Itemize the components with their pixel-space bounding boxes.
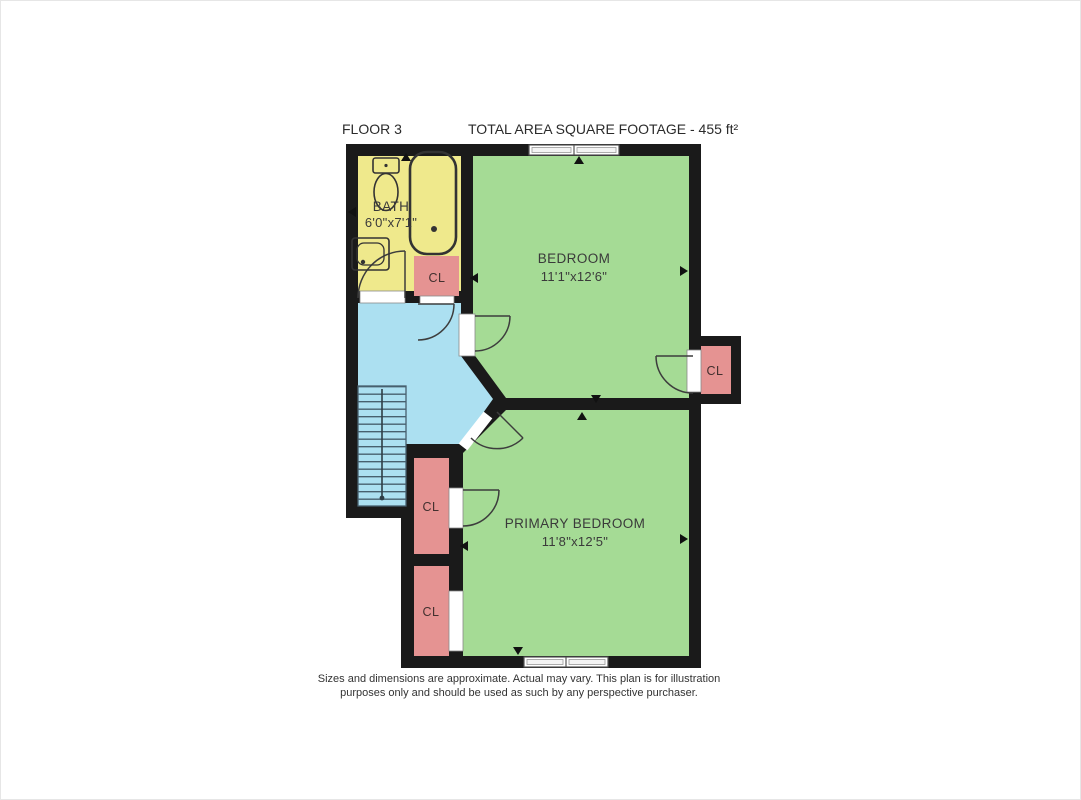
label-bedroom: BEDROOM (538, 251, 611, 266)
label-bedroom-dims: 11'1"x12'6" (541, 269, 607, 284)
label-closet-bedroom: CL (707, 364, 724, 378)
label-bath-dims: 6'0"x7'1" (365, 215, 417, 230)
primary-lower-closet-door-opening (449, 591, 463, 651)
header-total-area-label: TOTAL AREA SQUARE FOOTAGE - 455 ft² (468, 121, 739, 137)
label-primary-bedroom: PRIMARY BEDROOM (505, 516, 646, 531)
label-closet-primary-lower: CL (423, 605, 440, 619)
label-closet-primary-upper: CL (423, 500, 440, 514)
window-primary-bottom (524, 657, 608, 667)
footer-line1: Sizes and dimensions are approximate. Ac… (318, 673, 721, 685)
label-bath: BATH (373, 199, 410, 214)
footer-line2: purposes only and should be used as such… (340, 687, 698, 699)
floorplan-svg: FLOOR 3 TOTAL AREA SQUARE FOOTAGE - 455 … (1, 1, 1081, 800)
hall-closet-door-opening (420, 296, 454, 304)
window-bedroom-top (529, 145, 619, 155)
label-closet-hall: CL (429, 271, 446, 285)
bath-door-opening (360, 291, 405, 303)
primary-upper-closet-door-opening (449, 488, 463, 528)
room-primary-bedroom-floor (463, 410, 689, 656)
footer-disclaimer: Sizes and dimensions are approximate. Ac… (318, 673, 721, 699)
bedroom-door-opening (459, 314, 475, 356)
header-floor-label: FLOOR 3 (342, 121, 402, 137)
label-primary-bedroom-dims: 11'8"x12'5" (542, 534, 608, 549)
floorplan-page: FLOOR 3 TOTAL AREA SQUARE FOOTAGE - 455 … (0, 0, 1081, 800)
staircase (358, 386, 406, 506)
